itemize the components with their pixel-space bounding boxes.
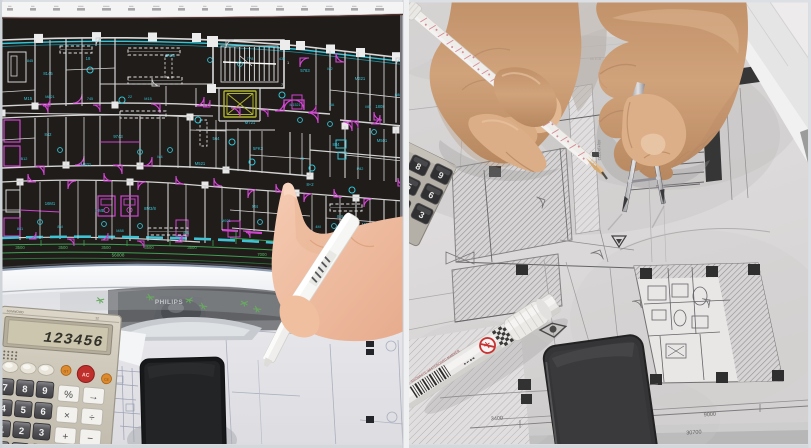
svg-text:M4: M4 [252, 204, 258, 209]
svg-text:3500: 3500 [58, 245, 68, 250]
svg-text:M15: M15 [24, 96, 33, 101]
svg-text:HME: HME [95, 208, 105, 213]
svg-text:M821: M821 [45, 95, 55, 99]
svg-text:M15: M15 [144, 97, 151, 101]
svg-text:×: × [64, 410, 71, 421]
svg-text:75: 75 [300, 157, 304, 161]
svg-text:AC: AC [82, 372, 90, 379]
svg-text:1FX3: 1FX3 [165, 53, 176, 58]
svg-text:3500: 3500 [144, 245, 154, 250]
svg-text:845: 845 [27, 59, 33, 63]
svg-text:M921: M921 [221, 219, 231, 223]
svg-text:GT: GT [63, 369, 68, 373]
svg-text:451: 451 [183, 231, 189, 235]
svg-text:4M: 4M [315, 225, 320, 229]
svg-text:P82: P82 [357, 167, 364, 171]
svg-text:7000: 7000 [257, 252, 267, 257]
svg-text:→: → [88, 391, 99, 403]
svg-text:16M1: 16M1 [45, 201, 56, 206]
svg-text:6: 6 [40, 407, 46, 418]
svg-text:3500: 3500 [15, 245, 25, 250]
svg-text:M821: M821 [81, 162, 92, 167]
svg-text:745: 745 [87, 97, 93, 101]
svg-text:8M: 8M [57, 225, 62, 229]
svg-text:M501: M501 [377, 138, 388, 143]
svg-text:M4: M4 [157, 155, 162, 159]
svg-text:9: 9 [42, 386, 48, 397]
svg-text:884: 884 [333, 142, 341, 147]
svg-text:8A: 8A [330, 103, 335, 107]
svg-text:5783: 5783 [300, 68, 310, 73]
svg-text:M88: M88 [116, 229, 123, 233]
svg-text:56008: 56008 [112, 253, 125, 258]
svg-text:M521: M521 [195, 161, 206, 166]
svg-text:M721: M721 [245, 120, 256, 125]
svg-text:12: 12 [95, 316, 99, 320]
svg-text:M2: M2 [327, 67, 332, 71]
svg-text:3500: 3500 [187, 245, 197, 250]
svg-text:8M3/8: 8M3/8 [144, 206, 156, 211]
svg-text:M1521: M1521 [290, 103, 301, 107]
svg-text:8145: 8145 [43, 71, 53, 76]
svg-text:B12: B12 [21, 157, 28, 161]
svg-text:841: 841 [17, 227, 23, 231]
svg-text:8+2: 8+2 [306, 182, 314, 187]
svg-text:8: 8 [22, 384, 28, 395]
svg-text:%: % [64, 389, 74, 401]
svg-text:2: 2 [18, 426, 24, 437]
svg-text:7P8: 7P8 [247, 57, 254, 61]
svg-text:18: 18 [86, 56, 91, 61]
svg-text:M5: M5 [365, 105, 370, 109]
svg-text:9743: 9743 [113, 134, 123, 139]
svg-text:3500: 3500 [101, 245, 111, 250]
svg-text:22: 22 [128, 95, 132, 99]
svg-text:M321: M321 [355, 76, 366, 81]
svg-text:3: 3 [38, 427, 44, 438]
svg-text:−: − [87, 433, 94, 444]
svg-text:+: + [62, 431, 69, 442]
svg-text:434: 434 [279, 57, 285, 61]
